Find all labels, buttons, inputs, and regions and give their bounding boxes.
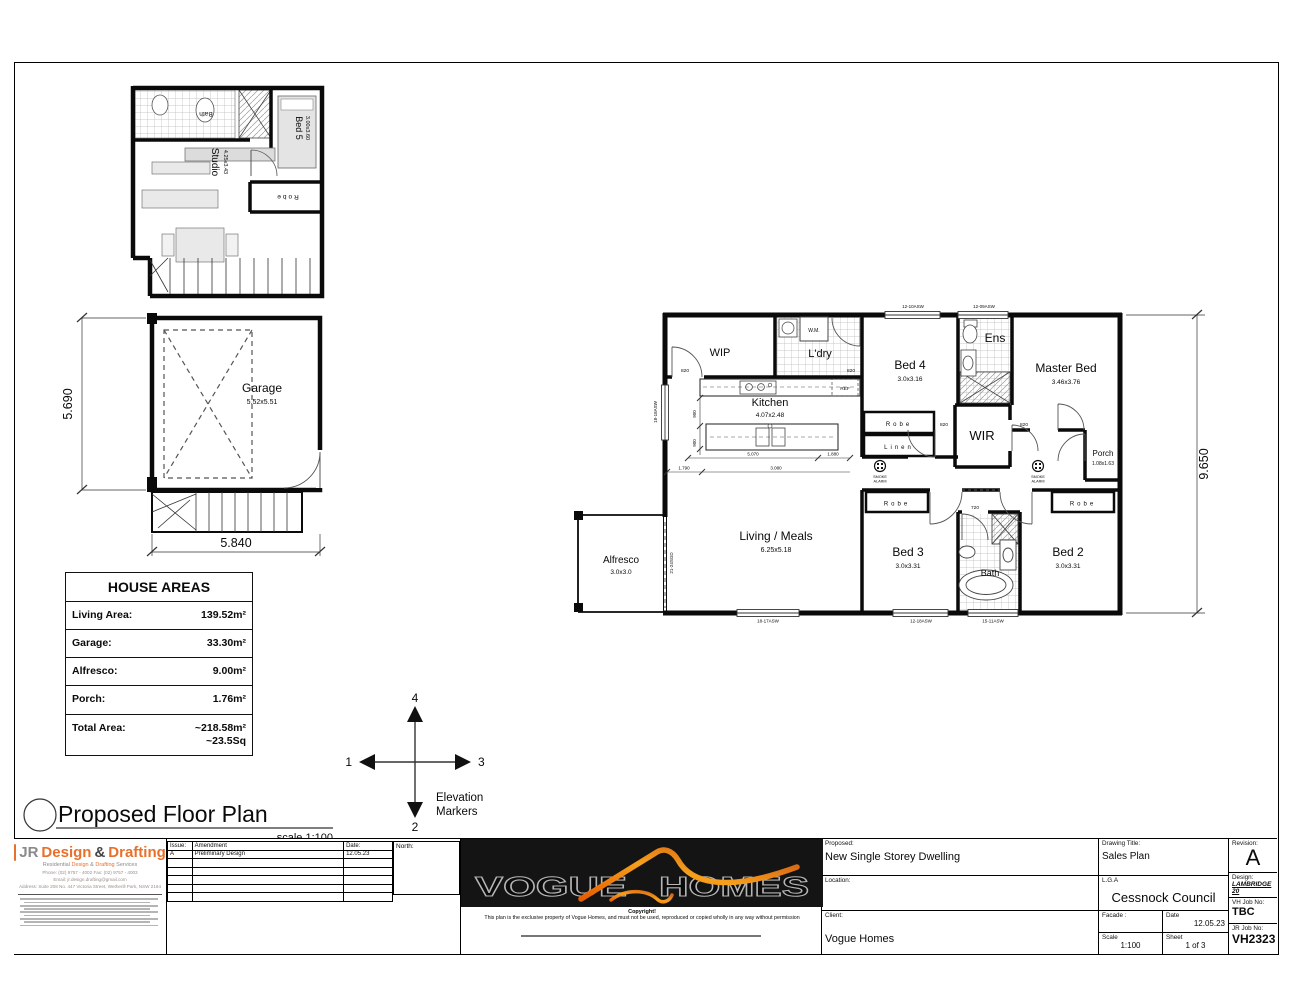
window-label: 12-18ASW (910, 619, 933, 624)
field-date: Date 12.05.23 (1163, 911, 1228, 933)
room-label-wip: WIP (710, 347, 731, 359)
area-label: Alfresco: (72, 665, 118, 678)
table-row (168, 867, 393, 876)
table-row: A Preliminary Design 12.05.23 (168, 850, 393, 859)
laundry-fittings (779, 317, 828, 341)
vogue-logo-art: VOGUE HOMES (461, 839, 823, 907)
amendment-issue: A (168, 850, 193, 859)
room-size-bed5: 3.00x3.60 (304, 116, 310, 140)
dim-label: 1.790 (678, 466, 690, 471)
garage-plan: Garage 5.52x5.51 5.690 5.840 (61, 313, 325, 556)
room-size-bed4: 3.0x3.16 (898, 376, 923, 383)
room-size-kitchen: 4.07x2.48 (756, 412, 785, 419)
upper-wc (152, 95, 168, 115)
smoke-alarm-2: SMOKE ALARM (1031, 461, 1045, 484)
room-label-bath: Bath (981, 568, 1000, 578)
elevation-number-3: 3 (478, 755, 485, 769)
jr-contact-details: Phone: (02) 9757 - 4002 Fax: (02) 9757 -… (18, 870, 162, 891)
table-row: Living Area: 139.52m² (66, 602, 252, 630)
elevation-number-4: 4 (412, 691, 419, 705)
door-label: 720 (971, 505, 979, 511)
room-size-bed3: 3.0x3.31 (896, 563, 921, 570)
door-label: 820 (940, 422, 948, 428)
elevation-markers: 4 2 1 3 Elevation Markers (345, 691, 485, 834)
elevation-caption-2: Markers (436, 806, 478, 818)
area-value: 33.30m² (207, 637, 246, 650)
label-linen: Linen (884, 445, 914, 451)
main-outer-walls (663, 313, 1122, 615)
house-areas-title: HOUSE AREAS (66, 573, 252, 602)
col-issue: Issue: (168, 842, 193, 851)
svg-text:ALARM: ALARM (873, 480, 886, 484)
drawing-sheet: Bath Bed 5 3.00x3.60 Studio 4.25x3.43 Ro… (0, 0, 1294, 1000)
main-interior-walls (665, 313, 1120, 615)
dim-main-right: 9.650 (1197, 448, 1211, 479)
room-label-bed5: Bed 5 (294, 116, 304, 140)
room-label-living: Living / Meals (739, 529, 812, 543)
col-amendment: Amendment (192, 842, 343, 851)
room-size-living: 6.25x5.18 (761, 547, 792, 554)
door-label: 820 (1020, 422, 1028, 428)
window-label: 12-09ASW (973, 304, 996, 309)
room-size-alfresco: 3.0x3.0 (610, 569, 632, 576)
title-bubble (24, 799, 56, 831)
amendment-desc: Preliminary Design (192, 850, 343, 859)
door-label: 820 (847, 368, 855, 374)
table-row: Issue: Amendment Date: (168, 842, 393, 851)
table-row (168, 884, 393, 893)
room-label-alfresco: Alfresco (603, 555, 640, 566)
dim-garage-left: 5.690 (61, 388, 75, 419)
fine-print-lines (18, 894, 162, 927)
label-wm: W.M. (808, 328, 819, 334)
project-fields: Proposed: New Single Storey Dwelling Loc… (822, 839, 1277, 954)
upper-basin (196, 98, 214, 122)
elevation-number-2: 2 (412, 820, 419, 834)
dim-label: 1.880 (827, 452, 839, 457)
table-row: Garage: 33.30m² (66, 630, 252, 658)
copyright-note: Copyright! This plan is the exclusive pr… (461, 907, 823, 922)
area-label: Living Area: (72, 609, 132, 622)
main-floor-plan: SMOKE ALARM SMOKE ALARM 12-10ASW 12-09AS… (574, 304, 1211, 624)
amendments-table: Issue: Amendment Date: A Preliminary Des… (167, 841, 393, 902)
area-label: Total Area: (72, 722, 126, 748)
upper-table (176, 228, 224, 262)
field-scale: Scale 1:100 (1098, 933, 1163, 954)
label-ref: REF (840, 386, 850, 392)
table-row: Total Area: ~218.58m² ~23.5Sq (66, 715, 252, 755)
amendment-date: 12.05.23 (344, 850, 393, 859)
room-label-bed4: Bed 4 (894, 358, 926, 372)
upper-bath-floor (135, 90, 235, 138)
room-label-bed2: Bed 2 (1052, 545, 1084, 559)
label-robe: Robe (886, 422, 912, 428)
room-label-garage: Garage (242, 381, 282, 395)
table-row (168, 893, 393, 902)
room-label-bed3: Bed 3 (892, 545, 924, 559)
area-label: Garage: (72, 637, 112, 650)
field-revision: Revision: A (1228, 839, 1277, 873)
room-label-upper-robe: Robe (275, 193, 299, 200)
area-label: Porch: (72, 693, 105, 706)
field-client: Client: Vogue Homes (822, 911, 1098, 954)
dim-label: 900 (692, 439, 697, 447)
garage-dimensions (77, 313, 325, 556)
door-label: 820 (681, 368, 689, 374)
north-label: North: (396, 843, 414, 850)
area-value: 9.00m² (213, 665, 246, 678)
elevation-number-1: 1 (345, 755, 352, 769)
room-label-kitchen: Kitchen (752, 397, 789, 409)
field-drawing-title: Drawing Title: Sales Plan (1098, 839, 1228, 876)
vogue-homes-block: VOGUE HOMES Copyright! This plan is the … (460, 839, 822, 954)
room-size-garage: 5.52x5.51 (247, 399, 278, 406)
field-location: Location: (822, 876, 1098, 911)
field-sheet: Sheet 1 of 3 (1163, 933, 1228, 954)
field-vh-job: VH Job No: TBC (1228, 898, 1277, 924)
dim-label: 900 (692, 410, 697, 418)
room-label-porch: Porch (1093, 449, 1114, 458)
door-label-alfresco: 21-24SGD (669, 552, 674, 574)
area-value: ~218.58m² ~23.5Sq (195, 722, 246, 748)
jr-document-icon (14, 844, 16, 861)
title-block: JR Design & Drafting Residential Design … (14, 838, 1277, 954)
jr-tagline: Residential Design & Drafting Services (18, 862, 162, 868)
window-label: 12-10ASW (902, 304, 925, 309)
garage-walls (152, 318, 320, 490)
dim-garage-bottom: 5.840 (220, 536, 251, 550)
room-label-ldry: L'dry (808, 348, 832, 360)
room-label-upper-bath: Bath (199, 110, 213, 117)
garage-stairs (152, 492, 302, 532)
window-label: 18-18ASW (653, 400, 658, 423)
room-size-porch: 1.08x1.63 (1092, 461, 1114, 467)
room-label-ens: Ens (985, 331, 1006, 345)
room-label-wir: WIR (969, 428, 994, 443)
garage-door-arc (284, 452, 320, 488)
upper-stairs (150, 258, 310, 294)
room-size-studio: 4.25x3.43 (222, 150, 228, 174)
garage-car-space (164, 330, 252, 478)
field-facade: Facade : (1098, 911, 1163, 933)
svg-text:SMOKE: SMOKE (1031, 475, 1045, 479)
dim-label: 3.080 (770, 466, 782, 471)
jr-design-block: JR Design & Drafting Residential Design … (14, 839, 167, 954)
label-robe: Robe (884, 502, 910, 508)
area-value: 1.76m² (213, 693, 246, 706)
svg-text:ALARM: ALARM (1031, 480, 1044, 484)
room-label-master: Master Bed (1035, 361, 1096, 375)
table-row (168, 876, 393, 885)
page-title: Proposed Floor Plan (58, 801, 268, 827)
right-dimension (1126, 310, 1205, 617)
area-value: 139.52m² (201, 609, 246, 622)
table-row: Porch: 1.76m² (66, 686, 252, 714)
elevation-caption-1: Elevation (436, 792, 483, 804)
field-design: Design: LAMBRIDGE 20 (1228, 873, 1277, 898)
room-size-master: 3.46x3.76 (1052, 379, 1081, 386)
vogue-wordmark-right: HOMES (659, 871, 809, 902)
copyright-body: This plan is the exclusive property of V… (461, 915, 823, 922)
upper-counter (185, 148, 275, 161)
table-row: Alfresco: 9.00m² (66, 658, 252, 686)
jr-logo: JR Design & Drafting (18, 844, 162, 861)
north-box: North: (393, 841, 460, 895)
table-row (168, 859, 393, 868)
house-areas-table: HOUSE AREAS Living Area: 139.52m² Garage… (65, 572, 253, 756)
smoke-alarm-1: SMOKE ALARM (873, 461, 887, 484)
field-lga: L.G.A Cessnock Council (1098, 876, 1228, 911)
room-label-studio: Studio (209, 148, 220, 177)
svg-text:SMOKE: SMOKE (873, 475, 887, 479)
window-label: 15-11ASW (982, 619, 1004, 624)
field-proposed: Proposed: New Single Storey Dwelling (822, 839, 1098, 876)
label-robe: Robe (1070, 502, 1096, 508)
col-date: Date: (344, 842, 393, 851)
window-label: 18-17ASW (757, 619, 780, 624)
room-size-bed2: 3.0x3.31 (1056, 563, 1081, 570)
field-jr-job: JR Job No: VH2323 (1228, 924, 1277, 954)
upper-floor-plan: Bath Bed 5 3.00x3.60 Studio 4.25x3.43 Ro… (133, 86, 322, 296)
vogue-logo: VOGUE HOMES (461, 839, 823, 907)
dim-label: 5.070 (747, 452, 759, 457)
